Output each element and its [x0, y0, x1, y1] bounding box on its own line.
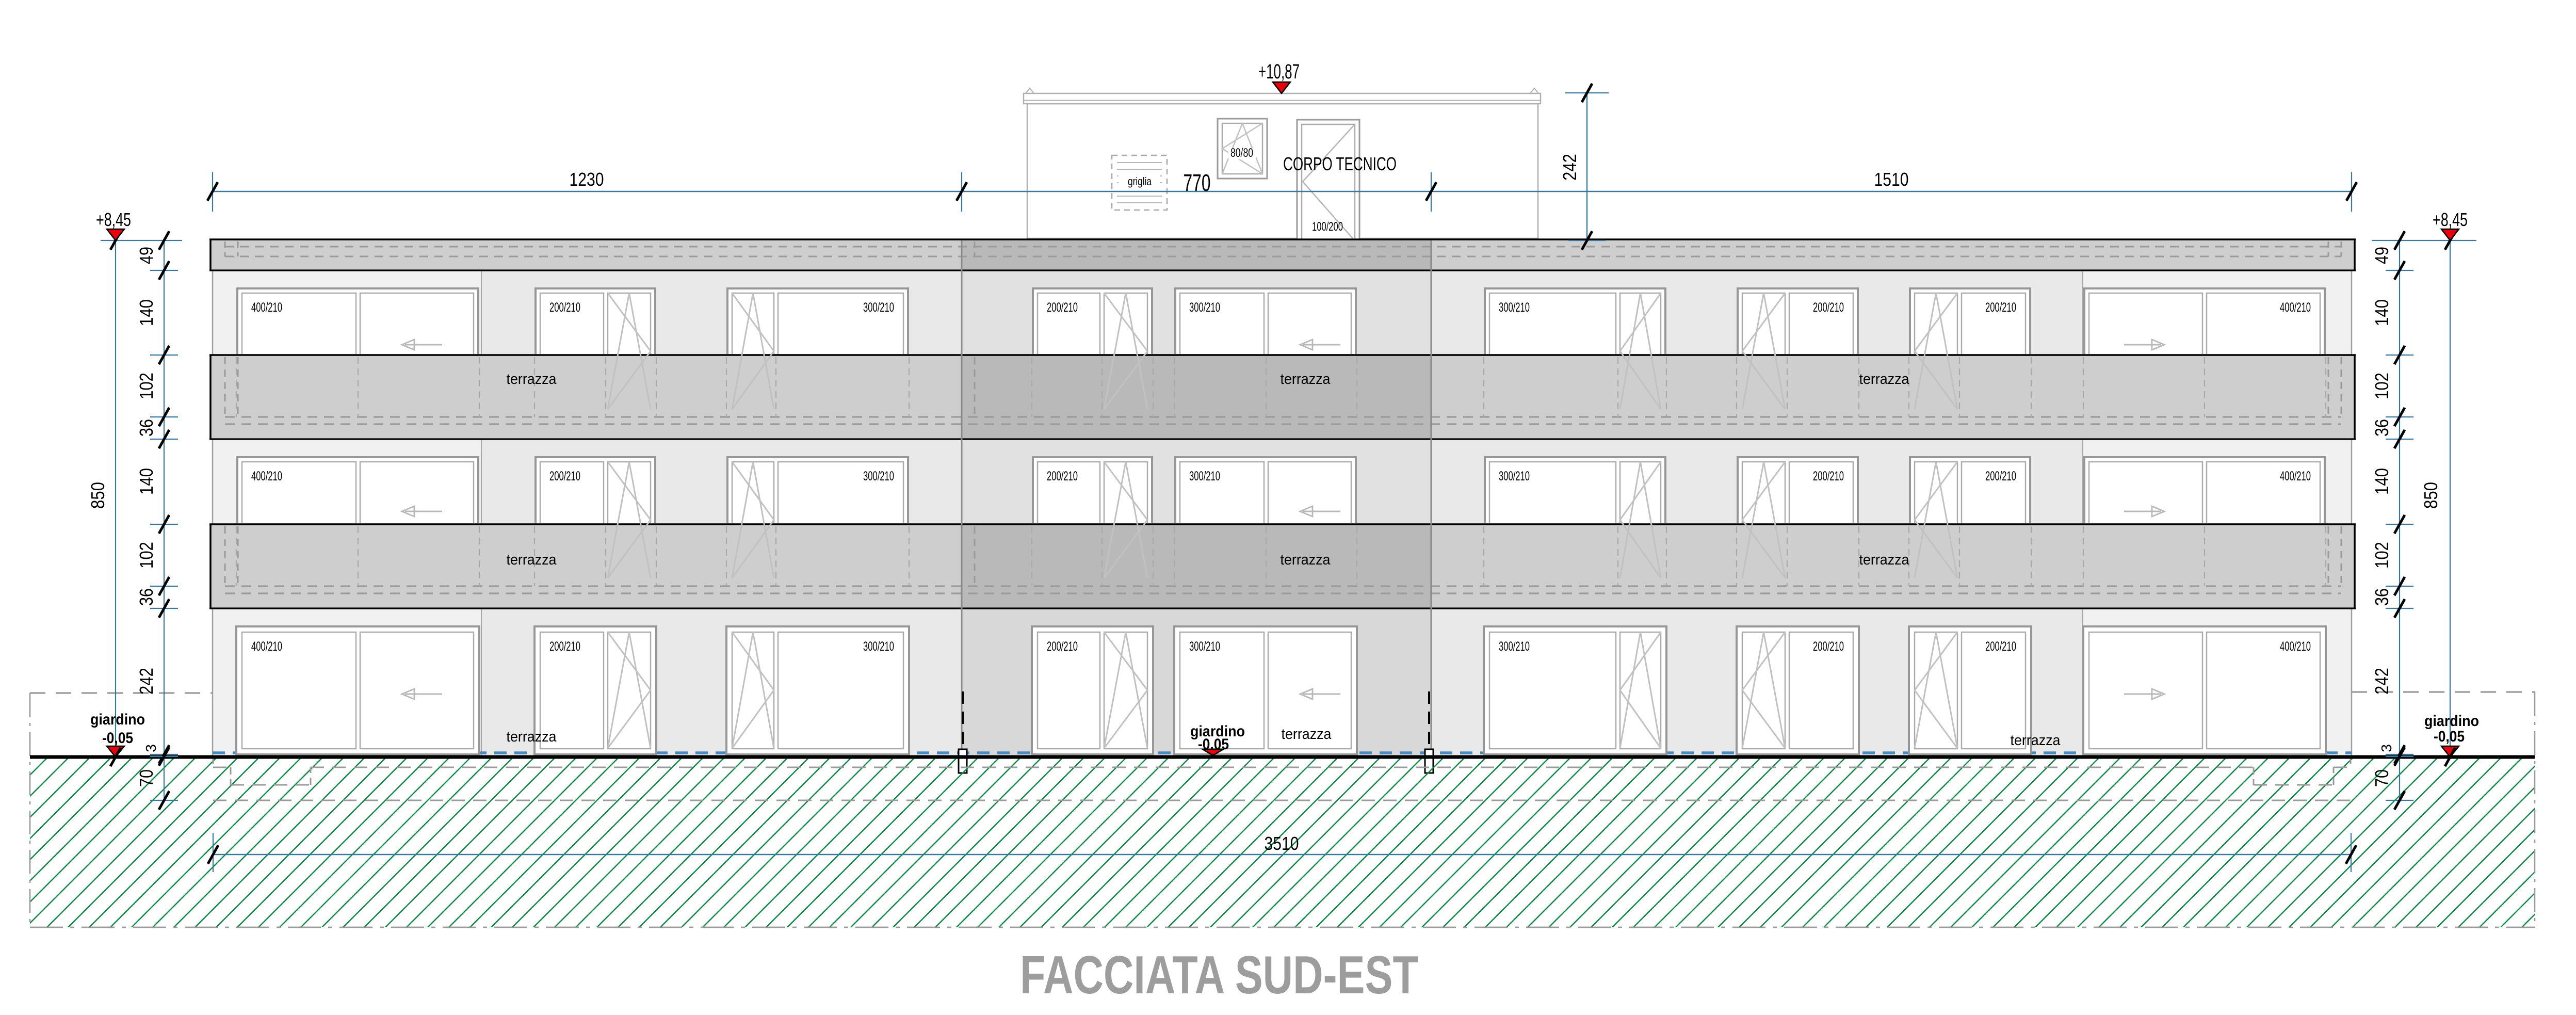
svg-text:400/210: 400/210	[251, 639, 282, 654]
svg-text:FACCIATA SUD-EST: FACCIATA SUD-EST	[1020, 945, 1418, 1005]
svg-text:36: 36	[2371, 588, 2392, 606]
svg-text:140: 140	[2371, 468, 2392, 495]
svg-text:1230: 1230	[570, 169, 604, 190]
svg-text:100/200: 100/200	[1312, 220, 1343, 234]
svg-text:+8,45: +8,45	[2433, 209, 2468, 230]
svg-text:CORPO TECNICO: CORPO TECNICO	[1283, 153, 1397, 174]
svg-text:242: 242	[136, 668, 157, 695]
svg-text:102: 102	[2371, 373, 2392, 399]
svg-text:200/210: 200/210	[1813, 639, 1844, 654]
svg-text:300/210: 300/210	[1499, 300, 1530, 315]
svg-text:102: 102	[136, 373, 157, 399]
svg-text:-0,05: -0,05	[102, 730, 133, 747]
svg-text:terrazza: terrazza	[507, 729, 557, 745]
svg-text:140: 140	[136, 299, 157, 326]
svg-text:-0,05: -0,05	[2434, 728, 2465, 745]
svg-text:70: 70	[136, 769, 157, 787]
svg-text:200/210: 200/210	[1985, 639, 2016, 654]
svg-text:400/210: 400/210	[2280, 639, 2311, 654]
svg-text:400/210: 400/210	[251, 300, 282, 315]
svg-text:griglia: griglia	[1128, 175, 1152, 188]
svg-text:36: 36	[2371, 419, 2392, 437]
svg-text:300/210: 300/210	[1189, 469, 1220, 484]
svg-text:300/210: 300/210	[863, 469, 894, 484]
svg-text:terrazza: terrazza	[507, 371, 557, 388]
svg-text:400/210: 400/210	[2280, 300, 2311, 315]
svg-text:770: 770	[1184, 169, 1211, 196]
svg-text:400/210: 400/210	[2280, 469, 2311, 484]
svg-text:terrazza: terrazza	[1859, 371, 1910, 388]
svg-text:300/210: 300/210	[1189, 300, 1220, 315]
svg-text:+8,45: +8,45	[96, 209, 131, 230]
svg-text:giardino: giardino	[2424, 713, 2479, 730]
svg-text:terrazza: terrazza	[1282, 726, 1332, 743]
svg-text:36: 36	[136, 588, 157, 606]
svg-text:terrazza: terrazza	[2011, 732, 2061, 749]
svg-text:giardino: giardino	[90, 711, 145, 728]
svg-text:200/210: 200/210	[1985, 300, 2016, 315]
svg-text:200/210: 200/210	[1047, 639, 1078, 654]
svg-text:200/210: 200/210	[1047, 469, 1078, 484]
svg-text:terrazza: terrazza	[1281, 371, 1331, 388]
svg-text:70: 70	[2371, 769, 2392, 787]
svg-text:242: 242	[2371, 668, 2392, 695]
svg-text:102: 102	[2371, 542, 2392, 569]
svg-text:300/210: 300/210	[863, 639, 894, 654]
svg-text:140: 140	[136, 468, 157, 495]
svg-text:300/210: 300/210	[863, 300, 894, 315]
svg-text:3: 3	[143, 744, 159, 752]
svg-text:200/210: 200/210	[1813, 469, 1844, 484]
svg-text:200/210: 200/210	[1985, 469, 2016, 484]
svg-text:80/80: 80/80	[1230, 146, 1253, 160]
svg-text:850: 850	[2420, 482, 2441, 509]
svg-text:200/210: 200/210	[549, 300, 580, 315]
svg-text:242: 242	[1559, 154, 1580, 181]
svg-text:3: 3	[2378, 744, 2394, 752]
svg-text:200/210: 200/210	[549, 469, 580, 484]
svg-text:300/210: 300/210	[1189, 639, 1220, 654]
svg-text:400/210: 400/210	[251, 469, 282, 484]
svg-text:36: 36	[136, 419, 157, 437]
svg-text:200/210: 200/210	[1813, 300, 1844, 315]
svg-text:1510: 1510	[1874, 169, 1909, 190]
svg-text:200/210: 200/210	[1047, 300, 1078, 315]
svg-text:terrazza: terrazza	[1281, 552, 1331, 568]
svg-text:102: 102	[136, 542, 157, 569]
svg-text:300/210: 300/210	[1499, 469, 1530, 484]
svg-text:3510: 3510	[1265, 833, 1299, 854]
svg-text:49: 49	[2371, 247, 2392, 264]
svg-text:terrazza: terrazza	[1859, 552, 1910, 568]
svg-text:terrazza: terrazza	[507, 552, 557, 568]
svg-text:200/210: 200/210	[549, 639, 580, 654]
svg-text:140: 140	[2371, 299, 2392, 326]
svg-text:850: 850	[87, 482, 108, 509]
svg-text:49: 49	[136, 247, 157, 264]
svg-text:+10,87: +10,87	[1258, 60, 1300, 83]
svg-text:300/210: 300/210	[1499, 639, 1530, 654]
